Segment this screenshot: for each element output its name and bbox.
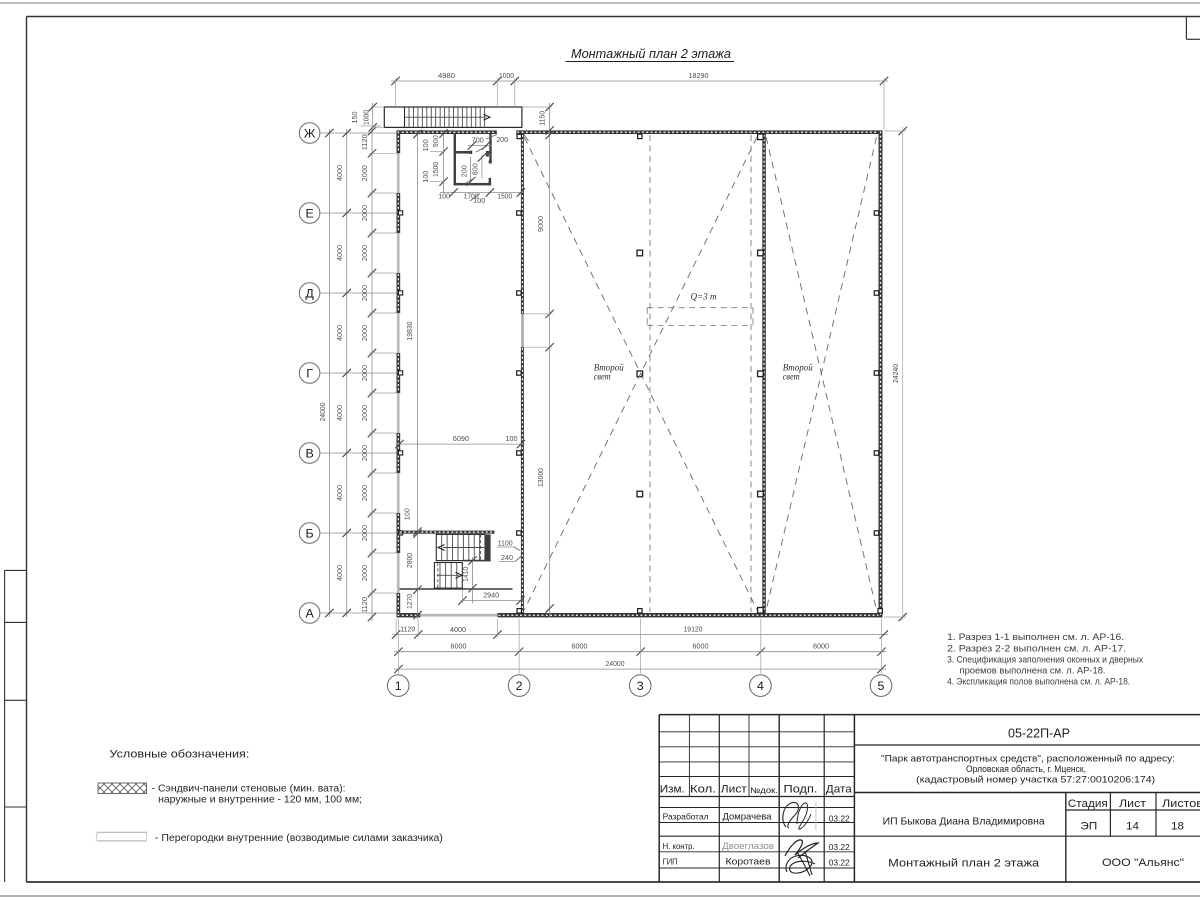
svg-text:19830: 19830 xyxy=(405,322,414,341)
svg-text:4. Экспликация полов выполнена: 4. Экспликация полов выполнена см. л. АР… xyxy=(947,676,1130,687)
svg-text:05-22П-АР: 05-22П-АР xyxy=(1008,727,1070,741)
svg-text:4000: 4000 xyxy=(335,245,344,261)
svg-text:1120: 1120 xyxy=(360,134,369,150)
svg-text:5: 5 xyxy=(878,679,885,693)
svg-text:Орловская область, г. Мценск,: Орловская область, г. Мценск, xyxy=(966,764,1086,774)
svg-text:2800: 2800 xyxy=(405,553,414,568)
svg-text:100: 100 xyxy=(438,191,450,200)
svg-text:1500: 1500 xyxy=(431,162,440,177)
svg-text:Кол.: Кол. xyxy=(690,783,716,795)
svg-text:Двоеглазов: Двоеглазов xyxy=(722,840,774,851)
svg-text:А: А xyxy=(305,606,314,620)
svg-text:4000: 4000 xyxy=(335,405,344,421)
svg-text:1. Разрез 1-1 выполнен см. л.: 1. Разрез 1-1 выполнен см. л. АР-16. xyxy=(947,631,1124,642)
svg-text:2000: 2000 xyxy=(360,205,369,221)
svg-text:Изм.: Изм. xyxy=(660,783,685,795)
svg-text:ГИП: ГИП xyxy=(663,857,678,867)
svg-text:1120: 1120 xyxy=(360,597,369,613)
svg-text:100: 100 xyxy=(421,139,430,151)
svg-text:200: 200 xyxy=(496,135,508,144)
svg-text:№док.: №док. xyxy=(750,786,778,795)
svg-text:Домрачева: Домрачева xyxy=(723,811,773,822)
svg-text:150: 150 xyxy=(350,112,359,124)
svg-text:ЭП: ЭП xyxy=(1080,821,1097,833)
svg-text:24000: 24000 xyxy=(606,659,625,668)
svg-text:4000: 4000 xyxy=(335,325,344,341)
svg-text:2000: 2000 xyxy=(360,485,369,501)
svg-text:свет: свет xyxy=(594,372,611,383)
svg-text:6000: 6000 xyxy=(572,641,588,650)
svg-text:1500: 1500 xyxy=(497,191,512,200)
svg-text:В: В xyxy=(305,446,313,460)
svg-text:4000: 4000 xyxy=(335,485,344,501)
svg-text:4000: 4000 xyxy=(335,165,344,181)
svg-text:- Перегородки внутренние (возв: - Перегородки внутренние (возводимые сил… xyxy=(155,833,443,844)
svg-text:Монтажный план 2 этажа: Монтажный план 2 этажа xyxy=(571,47,731,61)
svg-text:1: 1 xyxy=(395,679,402,693)
svg-text:Б: Б xyxy=(306,526,314,540)
svg-text:03.22: 03.22 xyxy=(829,858,850,868)
svg-text:800: 800 xyxy=(471,163,480,175)
svg-text:Лист: Лист xyxy=(1119,798,1146,810)
svg-text:Q=3 т: Q=3 т xyxy=(691,292,717,302)
svg-text:ИП Быкова Диана Владимировна: ИП Быкова Диана Владимировна xyxy=(883,816,1045,827)
svg-text:19120: 19120 xyxy=(684,624,703,633)
svg-text:2000: 2000 xyxy=(360,405,369,421)
svg-text:24240: 24240 xyxy=(891,364,900,383)
svg-text:1000: 1000 xyxy=(362,110,371,125)
svg-text:900: 900 xyxy=(431,135,440,147)
svg-text:03.22: 03.22 xyxy=(829,842,850,852)
svg-text:100: 100 xyxy=(506,434,518,443)
svg-text:2000: 2000 xyxy=(360,445,369,461)
svg-text:240: 240 xyxy=(501,553,513,562)
svg-text:2940: 2940 xyxy=(483,590,499,599)
svg-text:Стадия: Стадия xyxy=(1068,798,1108,810)
svg-text:1150: 1150 xyxy=(537,111,546,126)
svg-text:4980: 4980 xyxy=(438,71,455,80)
svg-text:Коротаев: Коротаев xyxy=(726,856,771,867)
svg-text:1100: 1100 xyxy=(498,538,513,547)
svg-text:3: 3 xyxy=(637,679,644,693)
svg-text:Подп.: Подп. xyxy=(784,783,818,795)
svg-text:1410: 1410 xyxy=(461,567,470,582)
svg-text:"Парк автотранспортных средств: "Парк автотранспортных средств", располо… xyxy=(881,754,1175,764)
svg-text:4: 4 xyxy=(757,679,764,693)
svg-text:200: 200 xyxy=(459,165,468,177)
svg-text:18: 18 xyxy=(1171,821,1184,833)
svg-text:Ж: Ж xyxy=(304,126,316,140)
svg-text:Дата: Дата xyxy=(826,783,852,795)
svg-text:03.22: 03.22 xyxy=(829,813,850,823)
svg-text:Монтажный план 2 этажа: Монтажный план 2 этажа xyxy=(888,857,1040,869)
svg-text:Разработал: Разработал xyxy=(663,812,709,822)
svg-text:24000: 24000 xyxy=(318,403,327,422)
svg-text:2000: 2000 xyxy=(360,325,369,341)
svg-text:4000: 4000 xyxy=(450,625,466,634)
svg-text:6000: 6000 xyxy=(693,641,709,650)
svg-text:Условные обозначения:: Условные обозначения: xyxy=(109,749,249,761)
svg-text:4000: 4000 xyxy=(335,565,344,581)
svg-text:Г: Г xyxy=(306,366,313,380)
svg-text:наружные и внутренние - 120 мм: наружные и внутренние - 120 мм, 100 мм; xyxy=(158,795,362,806)
svg-text:Лист: Лист xyxy=(721,783,747,795)
svg-text:Листов: Листов xyxy=(1162,798,1200,810)
svg-text:2: 2 xyxy=(516,679,523,693)
svg-text:14: 14 xyxy=(1126,821,1139,833)
svg-text:2. Разрез 2-2 выполнен см. л.: 2. Разрез 2-2 выполнен см. л. АР-17. xyxy=(947,642,1126,653)
svg-text:Н. контр.: Н. контр. xyxy=(663,841,695,851)
svg-text:6000: 6000 xyxy=(451,641,467,650)
svg-text:13000: 13000 xyxy=(536,468,545,487)
svg-text:проемов выполнена см. л. АР-18: проемов выполнена см. л. АР-18. xyxy=(960,665,1106,676)
svg-text:1270: 1270 xyxy=(405,594,414,609)
svg-text:2000: 2000 xyxy=(360,565,369,581)
svg-text:9000: 9000 xyxy=(536,216,545,232)
svg-text:3. Спецификация заполнения око: 3. Спецификация заполнения оконных и две… xyxy=(947,653,1143,664)
svg-text:2000: 2000 xyxy=(360,365,369,381)
svg-text:(кадастровый номер участка 57:: (кадастровый номер участка 57:27:0010206… xyxy=(916,775,1155,785)
svg-text:свет: свет xyxy=(783,372,800,383)
svg-text:2000: 2000 xyxy=(360,525,369,541)
svg-text:100: 100 xyxy=(421,171,430,183)
svg-text:2000: 2000 xyxy=(360,245,369,261)
svg-text:ООО "Альянс": ООО "Альянс" xyxy=(1102,857,1184,869)
svg-text:Е: Е xyxy=(305,206,313,220)
svg-text:18290: 18290 xyxy=(689,71,709,80)
svg-text:1120: 1120 xyxy=(400,624,415,633)
svg-text:700: 700 xyxy=(472,135,484,144)
svg-text:1000: 1000 xyxy=(499,71,514,80)
svg-text:100: 100 xyxy=(402,508,411,520)
svg-text:2000: 2000 xyxy=(360,285,369,301)
svg-text:Д: Д xyxy=(305,286,314,300)
svg-text:2000: 2000 xyxy=(360,165,369,181)
svg-text:- Сэндвич-панели стеновые (мин: - Сэндвич-панели стеновые (мин. вата): xyxy=(152,783,346,794)
svg-text:6000: 6000 xyxy=(813,641,829,650)
svg-text:6090: 6090 xyxy=(453,434,469,443)
